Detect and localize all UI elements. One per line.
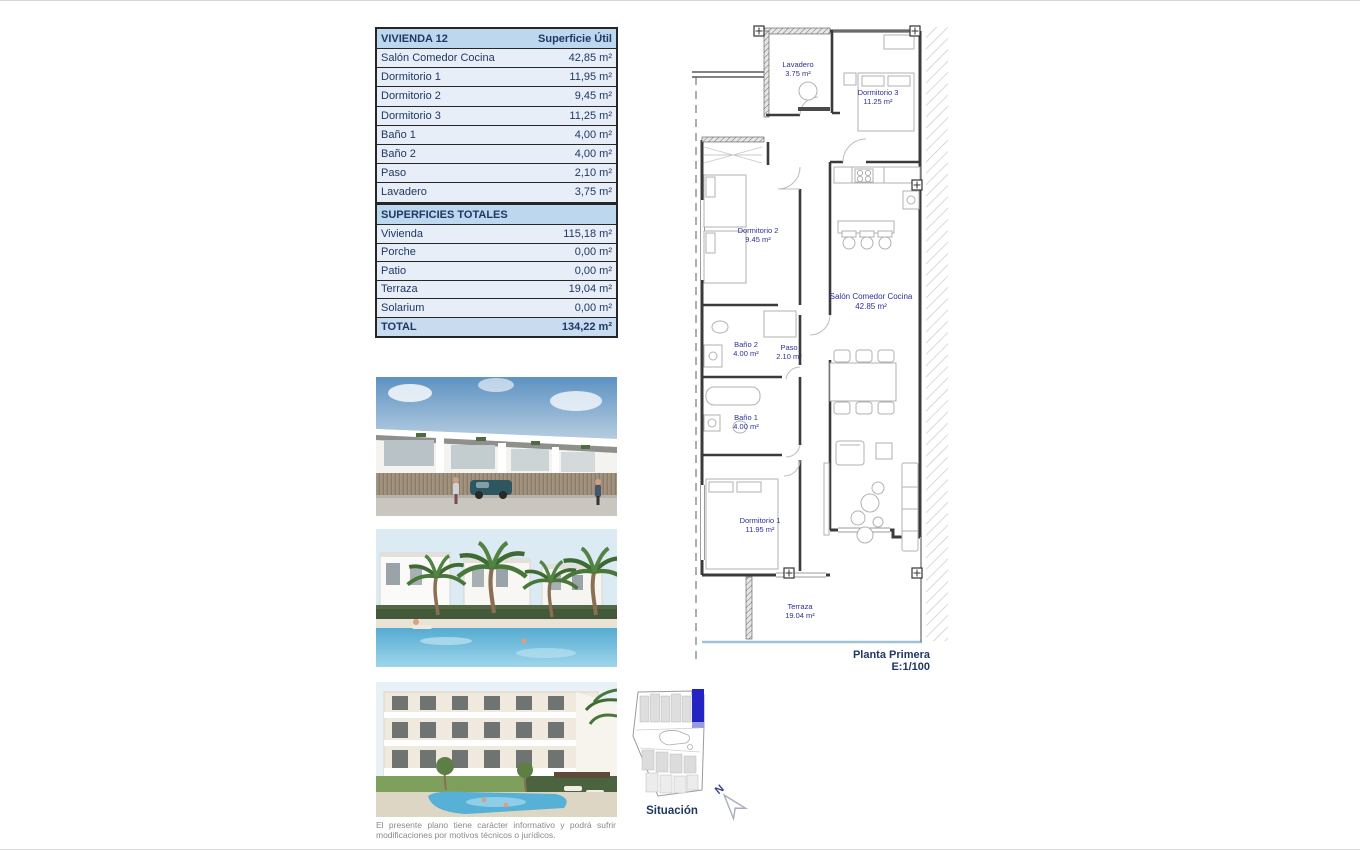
row-label: Dormitorio 2 (381, 90, 441, 102)
top-edge-line (0, 0, 1360, 1)
room-label-name: Baño 2 (734, 340, 758, 349)
row-label: Terraza (381, 283, 418, 295)
row-value: 134,22 m² (562, 321, 612, 333)
room-label-name: Lavadero (782, 60, 813, 69)
render-photo-apartment-pool (376, 682, 617, 817)
room-label-name: Paso (780, 343, 797, 352)
row-value: 3,75 m² (575, 186, 612, 198)
room-label-area: 2.10 m² (776, 352, 802, 361)
room-label-name: Salón Comedor Cocina (830, 292, 913, 301)
row-label: Vivienda (381, 228, 423, 240)
table-row: Dormitorio 3 11,25 m² (377, 106, 616, 125)
disclaimer-line1: El presente plano tiene carácter informa… (376, 820, 638, 830)
plan-caption-title: Planta Primera (690, 649, 930, 661)
table-row: Porche 0,00 m² (377, 243, 616, 262)
row-value: 0,00 m² (575, 302, 612, 314)
room-label-name: Dormitorio 1 (740, 516, 781, 525)
render-photo-building-exterior (376, 377, 617, 516)
row-value: 19,04 m² (569, 283, 612, 295)
table-row: Patio 0,00 m² (377, 261, 616, 280)
row-label: Porche (381, 246, 416, 258)
row-value: 11,25 m² (569, 110, 612, 122)
disclaimer-line2: modificaciones por motivos técnicos o ju… (376, 830, 638, 840)
row-label: Baño 1 (381, 129, 416, 141)
highlighted-plot-terrace (692, 722, 704, 728)
table-row: Dormitorio 1 11,95 m² (377, 67, 616, 86)
apartment-pool-illustration (376, 682, 617, 817)
plan-caption-scale: E:1/100 (690, 661, 930, 673)
room-label-name: Terraza (787, 602, 813, 611)
room-label-name: Baño 1 (734, 413, 758, 422)
plot-row-top (640, 694, 691, 722)
row-value: 11,95 m² (569, 71, 612, 83)
row-label: Dormitorio 1 (381, 71, 441, 83)
table-row: Lavadero 3,75 m² (377, 182, 616, 201)
row-label: Lavadero (381, 186, 427, 198)
table-row: Terraza 19,04 m² (377, 280, 616, 299)
unit-areas-table: VIVIENDA 12 Superficie Útil Salón Comedo… (375, 27, 618, 204)
adjacent-building-hatch (926, 27, 948, 641)
room-label-area: 42.85 m² (855, 302, 887, 311)
building-exterior-illustration (376, 377, 617, 516)
situation-map (630, 686, 714, 800)
row-label: Dormitorio 3 (381, 110, 441, 122)
row-label: Solarium (381, 302, 424, 314)
unit-table-header: VIVIENDA 12 Superficie Útil (377, 29, 616, 48)
render-photo-pool-garden (376, 529, 617, 667)
door-arcs (778, 97, 866, 476)
room-label-area: 11.25 m² (863, 97, 893, 106)
total-row: TOTAL 134,22 m² (377, 317, 616, 337)
disclaimer-note: El presente plano tiene carácter informa… (376, 820, 638, 840)
table-row: Vivienda 115,18 m² (377, 224, 616, 243)
row-label: Patio (381, 265, 406, 277)
plan-caption: Planta Primera E:1/100 (690, 649, 930, 673)
situation-label: Situación (626, 805, 718, 817)
north-arrow-icon: N (706, 776, 754, 824)
totals-table-header: SUPERFICIES TOTALES (377, 205, 616, 224)
unit-table-title: VIVIENDA 12 (381, 33, 448, 45)
furniture (704, 35, 920, 569)
row-value: 4,00 m² (575, 148, 612, 160)
row-value: 9,45 m² (575, 90, 612, 102)
row-value: 115,18 m² (563, 228, 612, 240)
room-label-area: 9.45 m² (745, 235, 771, 244)
row-label: Salón Comedor Cocina (381, 52, 495, 64)
table-row: Paso 2,10 m² (377, 163, 616, 182)
row-value: 2,10 m² (575, 167, 612, 179)
table-row: Solarium 0,00 m² (377, 298, 616, 317)
room-label-area: 19.04 m² (785, 611, 815, 620)
room-label-area: 4.00 m² (733, 349, 759, 358)
room-label-area: 3.75 m² (785, 69, 811, 78)
row-value: 0,00 m² (575, 246, 612, 258)
room-label-name: Dormitorio 2 (738, 226, 779, 235)
table-row: Baño 1 4,00 m² (377, 125, 616, 144)
room-label-area: 4.00 m² (733, 422, 759, 431)
terrace-party-wall (746, 577, 752, 639)
room-label-area: 11.95 m² (745, 525, 775, 534)
table-row: Baño 2 4,00 m² (377, 144, 616, 163)
room-label-name: Dormitorio 3 (858, 88, 899, 97)
row-label: Paso (381, 167, 406, 179)
plan-sheet: VIVIENDA 12 Superficie Útil Salón Comedo… (0, 0, 1360, 850)
unit-table-col-header: Superficie Útil (538, 33, 612, 45)
highlighted-plot (692, 689, 704, 722)
pool-garden-illustration (376, 529, 617, 667)
floorplan-drawing: Lavadero 3.75 m² Dormitorio 3 11.25 m² D… (688, 15, 948, 675)
totals-table-title: SUPERFICIES TOTALES (381, 209, 508, 221)
table-row: Salón Comedor Cocina 42,85 m² (377, 48, 616, 67)
row-label: Baño 2 (381, 148, 416, 160)
row-value: 0,00 m² (575, 265, 612, 277)
table-row: Dormitorio 2 9,45 m² (377, 86, 616, 105)
row-value: 4,00 m² (575, 129, 612, 141)
row-label: TOTAL (381, 321, 417, 333)
totals-table: SUPERFICIES TOTALES Vivienda 115,18 m² P… (375, 203, 618, 338)
entry-stairs (704, 147, 762, 163)
row-value: 42,85 m² (569, 52, 612, 64)
